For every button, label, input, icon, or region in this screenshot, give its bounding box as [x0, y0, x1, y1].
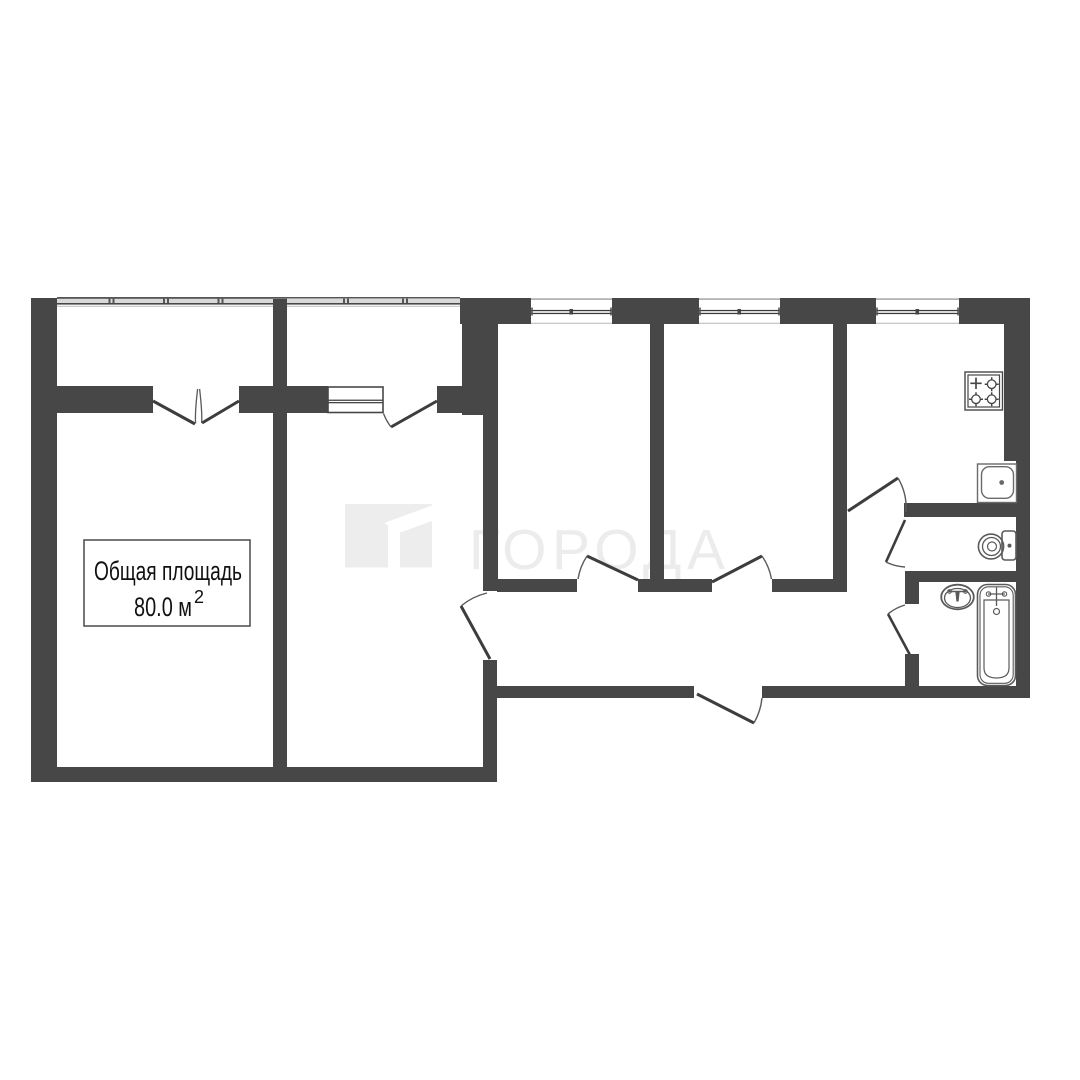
svg-text:ГОРОДА: ГОРОДА: [469, 518, 730, 582]
svg-text:Общая площадь: Общая площадь: [94, 556, 242, 586]
svg-text:2: 2: [194, 587, 204, 607]
svg-text:80.0 м: 80.0 м: [134, 592, 192, 622]
